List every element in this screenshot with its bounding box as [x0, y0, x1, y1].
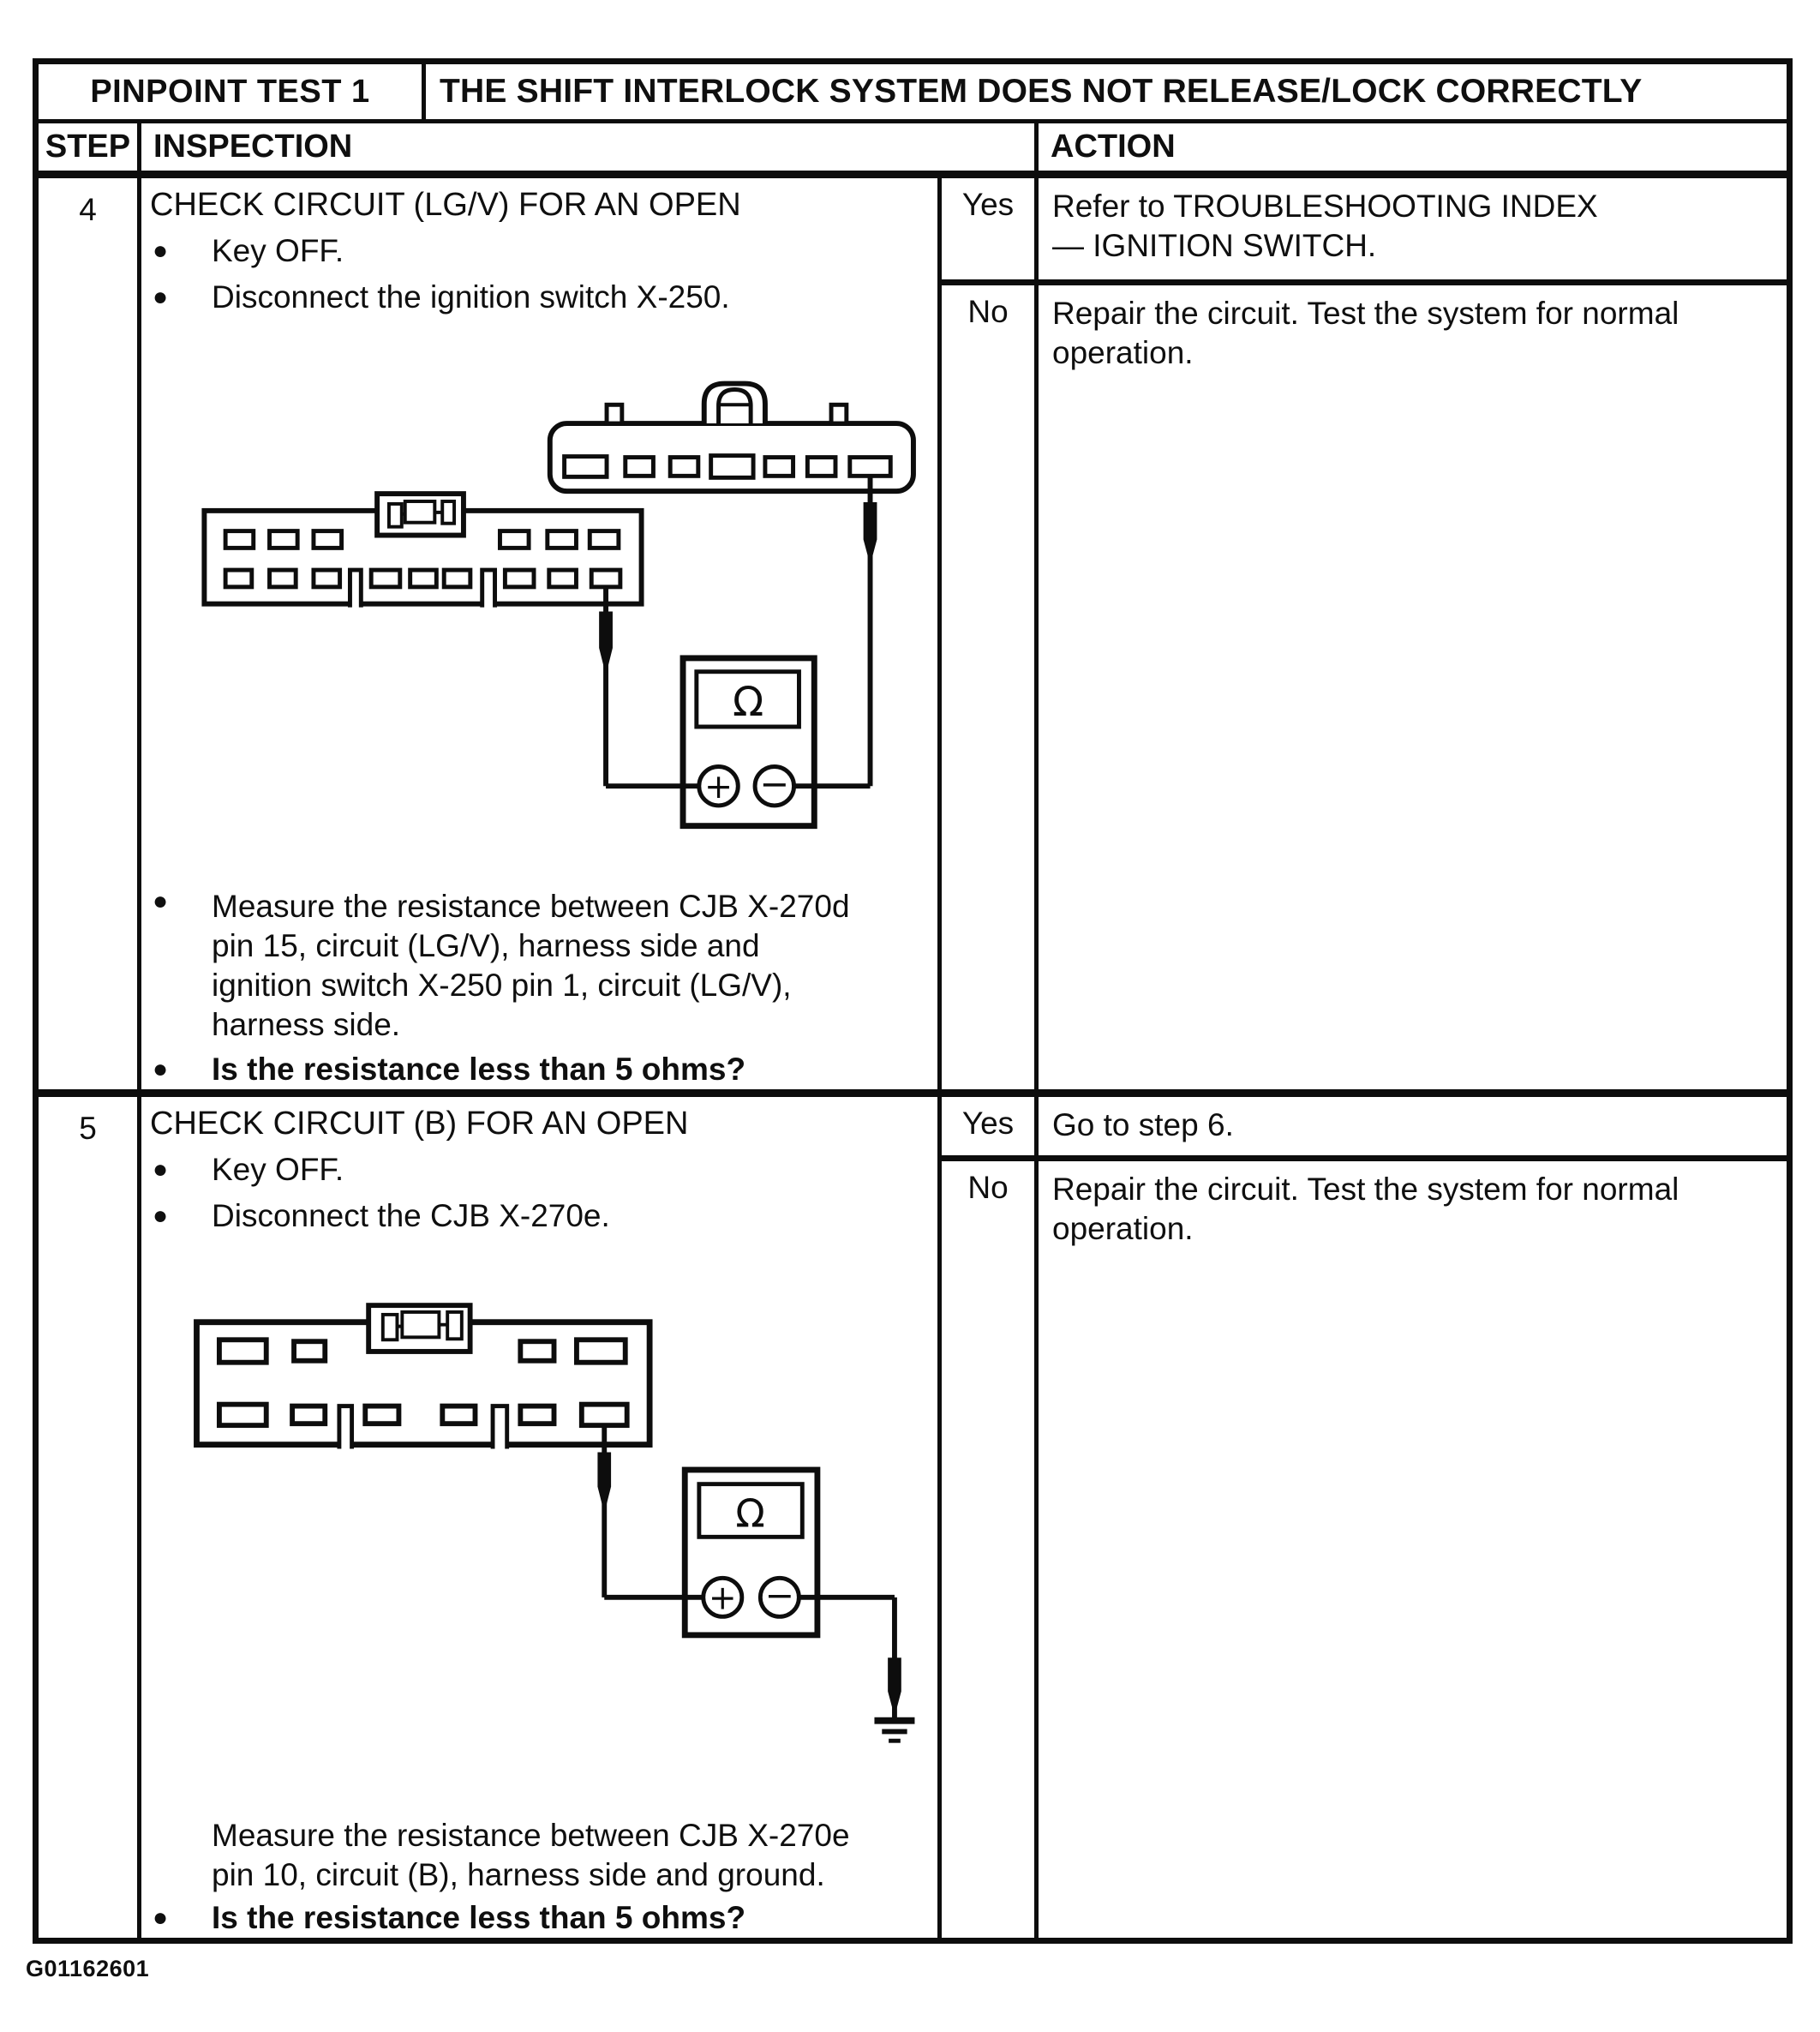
ground-icon: [874, 1721, 914, 1741]
connector-notch: [482, 570, 495, 608]
no-label: No: [942, 1161, 1039, 1938]
outcome-yes: Yes Refer to TROUBLESHOOTING INDEX — IGN…: [942, 178, 1787, 285]
action-cell: Go to step 6.: [1039, 1097, 1787, 1155]
bullet-icon: ●: [150, 278, 171, 317]
list-item: ● Key OFF.: [141, 231, 937, 271]
measure-line: Measure the resistance between CJB X-270…: [141, 887, 937, 926]
pinpoint-test-table: PINPOINT TEST 1 THE SHIFT INTERLOCK SYST…: [33, 58, 1793, 1944]
minus-label: −: [759, 763, 789, 805]
inspection-title: CHECK CIRCUIT (B) FOR AN OPEN: [141, 1104, 937, 1143]
outcome-yes: Yes Go to step 6.: [942, 1097, 1787, 1161]
measure-line: harness side.: [141, 1005, 937, 1045]
plus-label: +: [704, 767, 733, 806]
bullet-icon: ●: [150, 1898, 171, 1938]
test-probe-icon: [888, 1657, 901, 1717]
omega-symbol: Ω: [735, 1491, 764, 1537]
list-item: ● Key OFF.: [141, 1150, 937, 1190]
connector-notch: [350, 570, 361, 608]
column-header-action: ACTION: [1039, 123, 1787, 171]
ohmmeter: Ω + −: [606, 658, 870, 826]
bullet-text: Disconnect the CJB X-270e.: [212, 1196, 610, 1236]
bullet-text: Disconnect the ignition switch X-250.: [212, 278, 730, 317]
list-item: ● Disconnect the CJB X-270e.: [141, 1196, 937, 1236]
cjb-connector: [204, 494, 641, 607]
column-header-step: STEP: [39, 123, 141, 171]
bullet-icon: ●: [150, 1150, 171, 1190]
list-item: ● Disconnect the ignition switch X-250.: [141, 278, 937, 317]
action-cell: Repair the circuit. Test the system for …: [1039, 285, 1787, 1089]
column-header-inspection: INSPECTION: [141, 123, 1039, 171]
pinpoint-test-title: THE SHIFT INTERLOCK SYSTEM DOES NOT RELE…: [426, 64, 1787, 119]
ohmmeter: Ω + −: [604, 1470, 895, 1635]
omega-symbol: Ω: [733, 679, 763, 726]
measure-line: ignition switch X-250 pin 1, circuit (LG…: [141, 966, 937, 1005]
table-title-row: PINPOINT TEST 1 THE SHIFT INTERLOCK SYST…: [39, 64, 1787, 123]
column-header-row: STEP INSPECTION ACTION: [39, 123, 1787, 178]
action-cell: Refer to TROUBLESHOOTING INDEX — IGNITIO…: [1039, 178, 1787, 279]
measure-line: pin 15, circuit (LG/V), harness side and: [141, 926, 937, 966]
cjb-connector: [196, 1305, 650, 1448]
list-item: ● Is the resistance less than 5 ohms?: [141, 1050, 937, 1089]
figure-id: G01162601: [26, 1956, 149, 1982]
connector-pins: [225, 570, 620, 587]
connector-key-component: [383, 1312, 462, 1340]
outcome-cell-group: Yes Refer to TROUBLESHOOTING INDEX — IGN…: [942, 178, 1787, 1089]
pinpoint-test-label: PINPOINT TEST 1: [39, 64, 426, 119]
plus-label: +: [709, 1579, 737, 1618]
no-label: No: [942, 285, 1039, 1089]
step-number: 4: [39, 178, 141, 1089]
measure-instruction: Measure the resistance between CJB X-270…: [141, 1816, 937, 1895]
action-cell: Repair the circuit. Test the system for …: [1039, 1161, 1787, 1938]
table-row: 5 CHECK CIRCUIT (B) FOR AN OPEN ● Key OF…: [39, 1097, 1787, 1938]
connector-notch: [493, 1406, 507, 1449]
bullet-text: Key OFF.: [212, 1150, 344, 1190]
list-item: ● Is the resistance less than 5 ohms?: [141, 1898, 937, 1938]
connector-notch: [339, 1406, 352, 1449]
connector-tab: [607, 405, 622, 423]
measure-line: Measure the resistance between CJB X-270…: [141, 1816, 937, 1855]
action-line: Repair the circuit. Test the system for …: [1052, 294, 1773, 333]
outcome-no: No Repair the circuit. Test the system f…: [942, 1161, 1787, 1938]
inspection-cell: CHECK CIRCUIT (LG/V) FOR AN OPEN ● Key O…: [141, 178, 942, 1089]
minus-label: −: [765, 1575, 794, 1616]
question-text: Is the resistance less than 5 ohms?: [212, 1050, 745, 1089]
action-line: Repair the circuit. Test the system for …: [1052, 1170, 1773, 1209]
bullet-icon: ●: [150, 231, 171, 271]
connector-tab: [831, 405, 847, 423]
measure-instruction: Measure the resistance between CJB X-270…: [141, 887, 937, 1045]
test-probe-icon: [599, 612, 613, 675]
circuit-test-diagram-step5: Ω + −: [141, 1270, 933, 1790]
action-line: operation.: [1052, 333, 1773, 373]
circuit-test-diagram-step4: Ω + −: [141, 351, 933, 877]
test-probe-icon: [597, 1452, 611, 1513]
question-text: Is the resistance less than 5 ohms?: [212, 1898, 745, 1938]
action-line: Go to step 6.: [1052, 1106, 1773, 1145]
action-line: — IGNITION SWITCH.: [1052, 226, 1773, 266]
inspection-title: CHECK CIRCUIT (LG/V) FOR AN OPEN: [141, 185, 937, 225]
action-line: operation.: [1052, 1209, 1773, 1249]
test-probe-icon: [864, 502, 877, 565]
outcome-cell-group: Yes Go to step 6. No Repair the circuit.…: [942, 1097, 1787, 1938]
ignition-switch-connector: [550, 384, 913, 492]
yes-label: Yes: [942, 178, 1039, 279]
inspection-cell: CHECK CIRCUIT (B) FOR AN OPEN ● Key OFF.…: [141, 1097, 942, 1938]
action-line: Refer to TROUBLESHOOTING INDEX: [1052, 187, 1773, 226]
bullet-icon: ●: [150, 1050, 171, 1089]
bullet-text: Key OFF.: [212, 231, 344, 271]
step-number: 5: [39, 1097, 141, 1938]
table-row: 4 CHECK CIRCUIT (LG/V) FOR AN OPEN ● Key…: [39, 178, 1787, 1097]
yes-label: Yes: [942, 1097, 1039, 1155]
bullet-icon: ●: [150, 1196, 171, 1236]
measure-line: pin 10, circuit (B), harness side and gr…: [141, 1855, 937, 1895]
connector-key-component: [389, 501, 454, 527]
outcome-no: No Repair the circuit. Test the system f…: [942, 285, 1787, 1089]
